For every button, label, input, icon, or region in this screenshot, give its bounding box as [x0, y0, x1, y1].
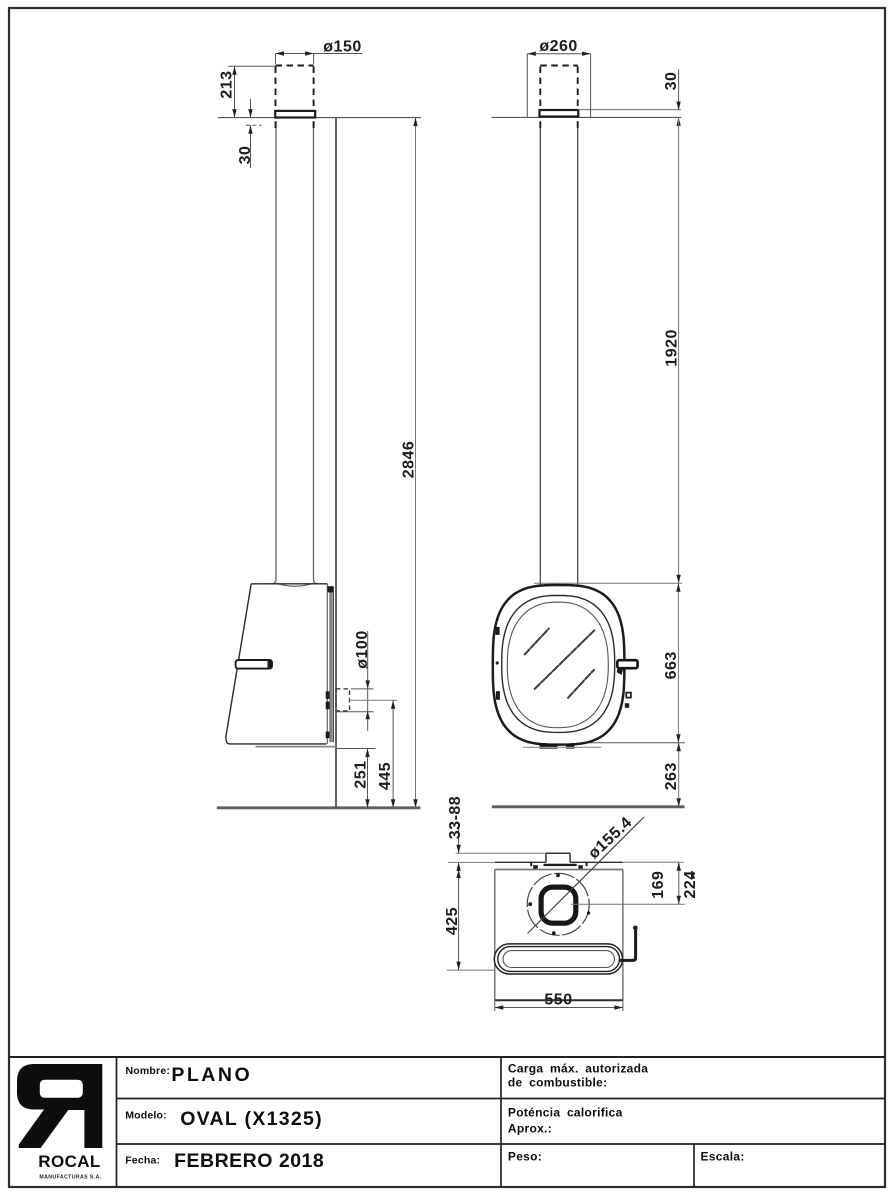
- svg-text:445: 445: [377, 762, 394, 790]
- svg-text:30: 30: [237, 146, 254, 165]
- svg-text:169: 169: [650, 871, 667, 899]
- svg-text:Modelo:: Modelo:: [125, 1110, 167, 1122]
- svg-text:ø100: ø100: [354, 630, 371, 668]
- svg-text:PLANO: PLANO: [171, 1064, 252, 1086]
- svg-text:251: 251: [353, 760, 370, 788]
- svg-text:ø260: ø260: [539, 38, 577, 55]
- svg-text:425: 425: [444, 907, 461, 935]
- svg-text:2846: 2846: [401, 441, 418, 479]
- svg-text:Escala:: Escala:: [701, 1150, 745, 1164]
- svg-text:Carga máx. autorizada: Carga máx. autorizada: [508, 1062, 648, 1076]
- svg-text:33-88: 33-88: [447, 796, 464, 839]
- svg-text:30: 30: [663, 72, 680, 91]
- svg-text:FEBRERO 2018: FEBRERO 2018: [174, 1150, 324, 1172]
- svg-text:Peso:: Peso:: [508, 1150, 542, 1164]
- svg-text:224: 224: [682, 870, 699, 898]
- svg-text:213: 213: [219, 70, 236, 98]
- svg-text:ø150: ø150: [323, 39, 361, 56]
- svg-text:ROCAL: ROCAL: [38, 1152, 100, 1171]
- svg-text:MANUFACTURAS S.A.: MANUFACTURAS S.A.: [39, 1175, 101, 1181]
- svg-text:Poténcia calorifica: Poténcia calorifica: [508, 1106, 623, 1120]
- svg-text:550: 550: [544, 992, 572, 1009]
- svg-text:Fecha:: Fecha:: [125, 1155, 160, 1167]
- svg-text:1920: 1920: [664, 329, 681, 367]
- svg-text:de combustible:: de combustible:: [508, 1076, 608, 1090]
- svg-text:663: 663: [663, 651, 680, 679]
- svg-text:Nombre:: Nombre:: [126, 1065, 171, 1077]
- svg-text:Aprox.:: Aprox.:: [508, 1122, 552, 1136]
- svg-text:263: 263: [663, 762, 680, 790]
- svg-text:OVAL (X1325): OVAL (X1325): [180, 1108, 323, 1130]
